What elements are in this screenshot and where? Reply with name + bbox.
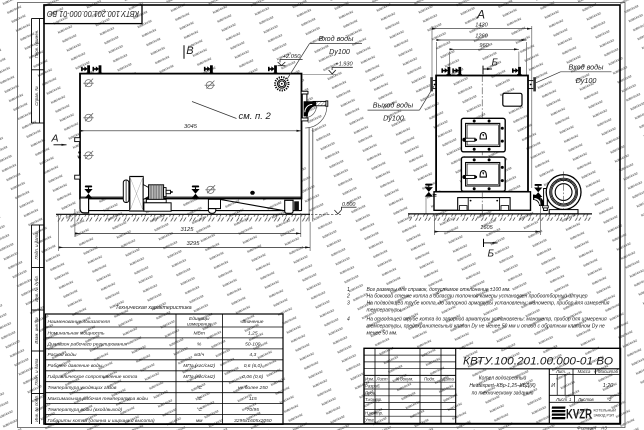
svg-text:Инв. № подл.: Инв. № подл. bbox=[34, 395, 39, 422]
svg-text:960: 960 bbox=[479, 43, 489, 49]
svg-text:1430: 1430 bbox=[475, 22, 488, 28]
svg-text:Dy100: Dy100 bbox=[329, 47, 350, 56]
svg-text:Подп. и дата: Подп. и дата bbox=[34, 358, 39, 386]
svg-text:МВт: МВт bbox=[193, 330, 204, 336]
svg-text:измерения: измерения bbox=[187, 323, 212, 328]
svg-text:3125: 3125 bbox=[181, 227, 195, 233]
svg-text:Утв.: Утв. bbox=[365, 418, 375, 423]
svg-text:Вход воды: Вход воды bbox=[569, 62, 605, 71]
svg-text:Наименование показателя: Наименование показателя bbox=[48, 319, 111, 325]
svg-text:см. п. 2: см. п. 2 bbox=[239, 111, 272, 122]
svg-text:Техническая характеристика: Техническая характеристика bbox=[115, 305, 191, 311]
svg-text:N докум.: N докум. bbox=[396, 377, 413, 382]
svg-text:3045: 3045 bbox=[184, 124, 198, 130]
svg-text:+2.050: +2.050 bbox=[283, 54, 302, 60]
svg-text:Подп. и дата: Подп. и дата bbox=[34, 232, 39, 260]
svg-text:0.000: 0.000 bbox=[342, 202, 356, 208]
svg-text:МПа (кгс/см2): МПа (кгс/см2) bbox=[183, 363, 215, 369]
svg-text:KVZR: KVZR bbox=[566, 406, 592, 421]
svg-text:Б: Б bbox=[492, 57, 499, 68]
svg-text:115: 115 bbox=[249, 396, 257, 402]
svg-text:Дата: Дата bbox=[442, 377, 455, 382]
svg-text:1:20: 1:20 bbox=[603, 383, 614, 389]
svg-text:Н.контр.: Н.контр. bbox=[365, 411, 383, 416]
svg-text:Формат: Формат bbox=[577, 425, 596, 430]
svg-text:1: 1 bbox=[347, 287, 350, 293]
svg-text:3295: 3295 bbox=[187, 241, 201, 247]
svg-text:0,06 (0,6): 0,06 (0,6) bbox=[242, 374, 263, 380]
svg-text:Номинальная мощность: Номинальная мощность bbox=[48, 330, 106, 336]
svg-text:Лист: Лист bbox=[555, 397, 567, 402]
svg-text:Температура уходящих газов: Температура уходящих газов bbox=[48, 385, 117, 391]
svg-text:На подводящей трубе котла, д: На подводящей трубе котла, до запорной а… bbox=[367, 300, 610, 307]
svg-text:МПа (кгс/см2): МПа (кгс/см2) bbox=[183, 374, 215, 380]
svg-text:Лист: Лист bbox=[376, 377, 388, 382]
svg-text:Температура воды (вход/выход): Температура воды (вход/выход) bbox=[48, 407, 123, 413]
svg-text:Максимальная рабочая температу: Максимальная рабочая температура воды bbox=[48, 396, 149, 402]
svg-text:На боковой стенке котла в обла: На боковой стенке котла в области топочн… bbox=[367, 293, 588, 300]
svg-text:4,3: 4,3 bbox=[249, 352, 256, 358]
svg-text:Значение: Значение bbox=[242, 319, 264, 325]
svg-text:°С: °С bbox=[196, 396, 202, 402]
svg-text:Т.контр.: Т.контр. bbox=[365, 397, 382, 402]
svg-text:температуры, предохранительный: температуры, предохранительный клапан Dу… bbox=[367, 323, 605, 330]
svg-text:Разраб.: Разраб. bbox=[365, 384, 381, 389]
svg-text:Вход воды: Вход воды bbox=[319, 34, 355, 43]
svg-text:Расход воды: Расход воды bbox=[48, 352, 77, 358]
svg-text:1605: 1605 bbox=[480, 225, 493, 231]
svg-text:Все размеры для справок, допус: Все размеры для справок, допустимое откл… bbox=[367, 287, 511, 293]
svg-text:1,25: 1,25 bbox=[248, 330, 258, 336]
svg-text:Пров.: Пров. bbox=[365, 390, 376, 395]
svg-text:70/95: 70/95 bbox=[247, 407, 260, 413]
svg-text:1260: 1260 bbox=[475, 34, 488, 40]
svg-text:0,6 (6,0): 0,6 (6,0) bbox=[244, 363, 263, 369]
svg-text:А3: А3 bbox=[600, 425, 607, 430]
svg-text:На отводящей трубе котла до за: На отводящей трубе котла до запорной арм… bbox=[367, 316, 608, 323]
svg-text:Рабочее давление воды: Рабочее давление воды bbox=[48, 363, 103, 369]
svg-text:Изм.: Изм. bbox=[365, 377, 374, 382]
svg-text:3: 3 bbox=[347, 301, 350, 307]
svg-text:Dy100: Dy100 bbox=[383, 114, 404, 123]
svg-text:температуры.: температуры. bbox=[367, 308, 403, 314]
svg-text:КВТУ.100.201.00.000-01 ВО: КВТУ.100.201.00.000-01 ВО bbox=[46, 9, 139, 18]
svg-text:В: В bbox=[186, 45, 193, 57]
svg-text:Б: Б bbox=[488, 249, 495, 260]
svg-text:Инв. № дубл.: Инв. № дубл. bbox=[34, 275, 39, 301]
svg-text:А: А bbox=[476, 8, 485, 22]
svg-text:КВТУ.100.201.00.000-01 ВО: КВТУ.100.201.00.000-01 ВО bbox=[463, 355, 614, 367]
svg-text:+1.930: +1.930 bbox=[335, 61, 353, 67]
svg-text:Перв. примен.: Перв. примен. bbox=[34, 30, 39, 59]
svg-text:по техническому заданию: по техническому заданию bbox=[472, 391, 534, 397]
svg-text:мм: мм bbox=[196, 419, 203, 424]
svg-text:Масштаб: Масштаб bbox=[598, 369, 619, 374]
svg-text:КОТЕЛЬНЫЙ: КОТЕЛЬНЫЙ bbox=[594, 409, 617, 413]
svg-text:Dy100: Dy100 bbox=[576, 76, 597, 85]
svg-text:4: 4 bbox=[347, 317, 350, 323]
svg-text:Выход воды: Выход воды bbox=[373, 100, 414, 109]
svg-text:Взам. инв. №: Взам. инв. № bbox=[34, 317, 39, 344]
svg-text:менее 50 мм.: менее 50 мм. bbox=[367, 330, 398, 336]
svg-text:м3/ч: м3/ч bbox=[194, 352, 204, 358]
svg-text:Листов: Листов bbox=[577, 397, 594, 402]
svg-text:Единицы: Единицы bbox=[189, 316, 210, 322]
svg-text:Котел водогрейный: Котел водогрейный bbox=[479, 375, 527, 382]
svg-text:Подп.: Подп. bbox=[424, 377, 435, 382]
svg-text:ЗАВОД РЭП: ЗАВОД РЭП bbox=[594, 414, 615, 418]
svg-text:Heatexpert–КВр-1,25–КБД(К): Heatexpert–КВр-1,25–КБД(К) bbox=[469, 383, 536, 389]
svg-text:Диапазон рабочего регулировани: Диапазон рабочего регулирования bbox=[47, 341, 128, 347]
svg-text:3295х1605х2050: 3295х1605х2050 bbox=[234, 418, 272, 424]
svg-text:А: А bbox=[51, 133, 59, 145]
svg-text:2: 2 bbox=[346, 294, 350, 300]
svg-text:Гидравлическое сопротивление к: Гидравлическое сопротивление котла bbox=[48, 374, 138, 380]
svg-text:Масса: Масса bbox=[578, 369, 591, 374]
svg-text:°С: °С bbox=[196, 385, 202, 391]
svg-text:%: % bbox=[197, 341, 202, 347]
svg-text:50-100: 50-100 bbox=[245, 341, 261, 347]
svg-text:Габариты котла (длинна и ширин: Габариты котла (длинна и ширина и высота… bbox=[48, 418, 155, 424]
svg-text:И: И bbox=[551, 383, 555, 389]
svg-text:не более 250: не более 250 bbox=[238, 385, 268, 391]
svg-text:Лит.: Лит. bbox=[555, 369, 566, 374]
svg-text:°С: °С bbox=[196, 407, 202, 413]
svg-text:Справ. №: Справ. № bbox=[34, 86, 39, 106]
